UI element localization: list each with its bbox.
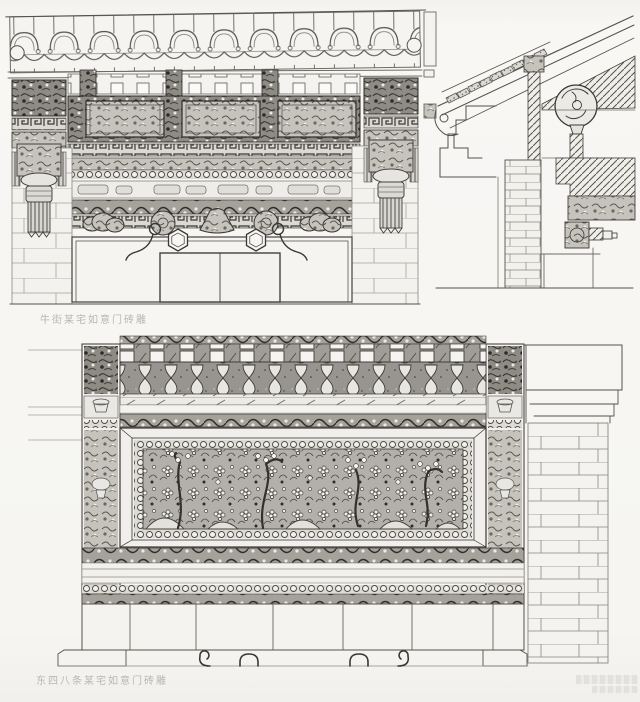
scroll-frieze-top — [120, 414, 486, 427]
lower-hatched-mass — [556, 158, 635, 196]
meander-band-upper — [68, 144, 360, 156]
figure-dongsi-gate-elevation — [28, 332, 640, 670]
right-wall — [524, 345, 622, 663]
roof-eave-tiles — [6, 10, 427, 73]
brick-pier-section — [498, 160, 541, 288]
bead-band-upper — [68, 171, 360, 179]
figure-gate-side-section — [428, 6, 638, 306]
watermark — [574, 674, 638, 696]
right-wall-brick-face — [528, 423, 608, 663]
floral-scroll-band-upper — [68, 158, 360, 170]
right-wall-cornice — [524, 345, 622, 423]
balustrade — [120, 336, 486, 413]
plinth-right — [483, 650, 527, 666]
figure-caption-dongsi: 东四八条某宅如意门砖雕 — [36, 672, 168, 687]
leader-lines — [28, 350, 82, 440]
door-jamb-lines — [541, 248, 600, 288]
carved-end-panel-left — [12, 80, 66, 148]
flower-tree-panel-scene — [143, 449, 463, 529]
carved-frieze-section — [568, 196, 635, 220]
eave-tip-ornament — [435, 110, 482, 158]
door-pin-section — [565, 222, 617, 248]
watermark-line-1 — [576, 675, 638, 684]
lower-bands — [82, 548, 524, 604]
base-stone-blocks — [58, 604, 528, 666]
cornice-step-profile — [440, 106, 496, 177]
carved-end-panel-right — [364, 78, 418, 146]
figure-niujie-gate-elevation — [4, 8, 440, 308]
plinth-left — [58, 650, 126, 666]
figure-caption-niujie: 牛街某宅如意门砖雕 — [40, 311, 148, 326]
cartouche-band — [68, 181, 360, 198]
watermark-line-2 — [592, 686, 638, 693]
dentil-band — [68, 70, 360, 96]
base-curl-ornaments — [200, 651, 409, 666]
door-leaves — [160, 253, 280, 302]
carved-floral-frieze — [68, 96, 360, 142]
ball-flower-ornament — [555, 85, 597, 160]
scanned-book-page: 牛街某宅如意门砖雕 — [0, 0, 640, 702]
